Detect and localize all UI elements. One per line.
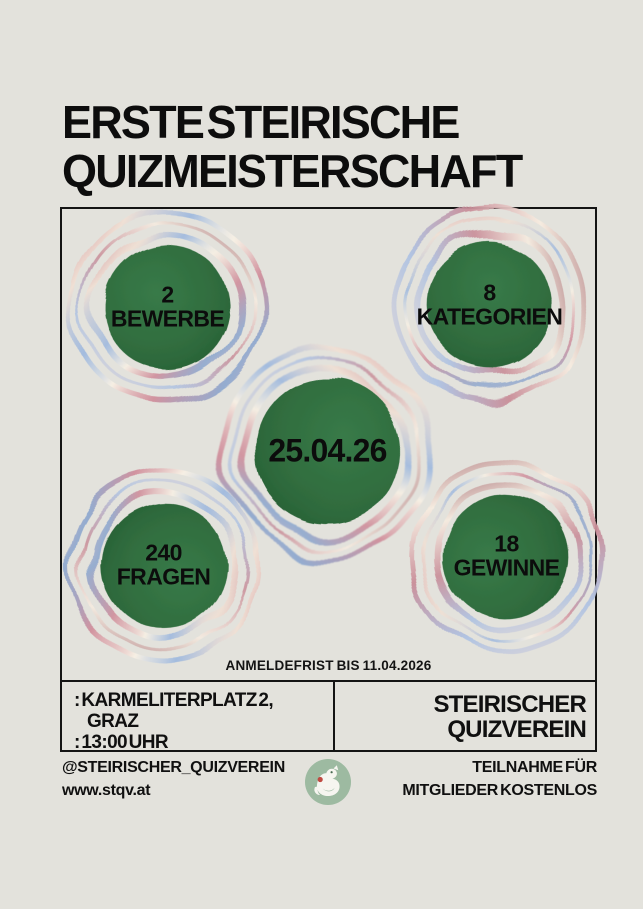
stat-label: KATEGORIEN [400, 305, 580, 329]
footer-contact: @STEIRISCHER_QUIZVEREIN www.stqv.at [62, 756, 285, 802]
title-line-1: ERSTE STEIRISCHE [62, 98, 521, 147]
instagram-handle: @STEIRISCHER_QUIZVEREIN [62, 756, 285, 779]
stat-value: 18 [417, 531, 597, 555]
note-line-2: MITGLIEDER KOSTENLOS [402, 779, 597, 802]
stat-text: 8 KATEGORIEN [400, 280, 580, 329]
note-line-1: TEILNAHME FÜR [402, 756, 597, 779]
stat-label: FRAGEN [74, 565, 254, 589]
event-address: : KARMELITERPLATZ 2, GRAZ : 13:00 UHR [62, 682, 333, 750]
stat-text: 18 GEWINNE [417, 531, 597, 580]
stat-value: 8 [400, 280, 580, 304]
footer: @STEIRISCHER_QUIZVEREIN www.stqv.at TEIL… [60, 756, 597, 816]
stat-text: 240 FRAGEN [74, 540, 254, 589]
website-url: www.stqv.at [62, 779, 285, 802]
stat-text: 2 BEWERBE [78, 282, 258, 331]
stat-value: 2 [78, 282, 258, 306]
stat-value: 240 [74, 540, 254, 564]
address-line-1: : KARMELITERPLATZ 2, [74, 690, 321, 711]
stat-blob-fragen: 240 FRAGEN [56, 458, 271, 673]
stat-label: GEWINNE [417, 556, 597, 580]
address-line-2: GRAZ [87, 711, 321, 732]
info-strip: : KARMELITERPLATZ 2, GRAZ : 13:00 UHR ST… [60, 680, 597, 752]
organizer-name: STEIRISCHER QUIZVEREIN [333, 682, 595, 750]
organizer-line-1: STEIRISCHER [341, 692, 586, 717]
event-time: : 13:00 UHR [74, 732, 321, 753]
stat-label: BEWERBE [78, 307, 258, 331]
organizer-line-2: QUIZVEREIN [341, 717, 586, 742]
quizverein-fox-logo-icon [304, 758, 352, 806]
stat-blob-gewinne: 18 GEWINNE [399, 449, 614, 664]
quiz-championship-poster: ERSTE STEIRISCHE QUIZMEISTERSCHAFT ANMEL… [0, 0, 643, 909]
footer-note: TEILNAHME FÜR MITGLIEDER KOSTENLOS [402, 756, 597, 802]
